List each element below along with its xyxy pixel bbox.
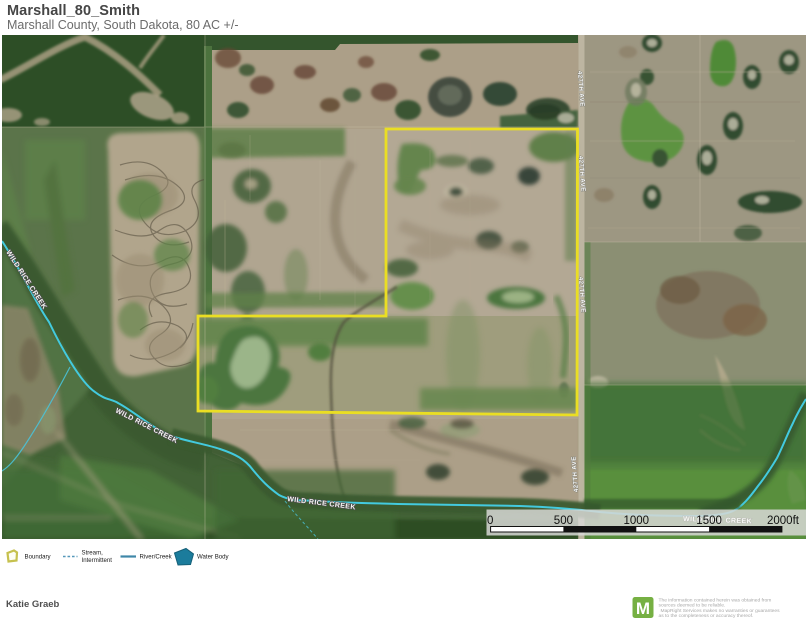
svg-text:Katie Graeb: Katie Graeb — [6, 599, 60, 610]
svg-text:M: M — [636, 599, 650, 618]
svg-text:MapRight Services makes no war: MapRight Services makes no warranties or… — [661, 608, 781, 614]
svg-text:500: 500 — [554, 515, 573, 527]
svg-text:Water Body: Water Body — [197, 554, 230, 561]
svg-text:Stream,: Stream, — [82, 550, 104, 557]
svg-text:The information contained here: The information contained herein was obt… — [659, 598, 772, 604]
svg-text:Intermittent: Intermittent — [82, 557, 113, 564]
svg-text:River/Creek: River/Creek — [140, 554, 173, 561]
svg-text:1000: 1000 — [624, 515, 650, 527]
svg-text:2000ft: 2000ft — [767, 515, 800, 527]
svg-text:Boundary: Boundary — [25, 554, 52, 561]
svg-text:as to the completeness or accu: as to the completeness or accuracy there… — [659, 613, 754, 619]
svg-text:1500: 1500 — [696, 515, 722, 527]
svg-text:sources deemed to be reliable.: sources deemed to be reliable. — [659, 603, 726, 609]
svg-text:0: 0 — [487, 515, 493, 527]
